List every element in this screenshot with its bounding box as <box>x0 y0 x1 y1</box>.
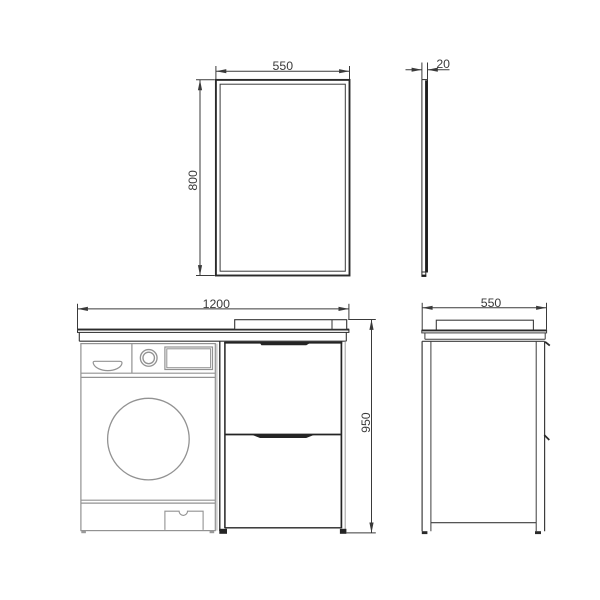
svg-text:950: 950 <box>359 412 373 433</box>
svg-text:550: 550 <box>481 296 502 310</box>
svg-text:550: 550 <box>273 59 294 73</box>
svg-text:20: 20 <box>436 57 450 71</box>
svg-text:800: 800 <box>186 170 200 191</box>
svg-text:1200: 1200 <box>203 297 231 311</box>
